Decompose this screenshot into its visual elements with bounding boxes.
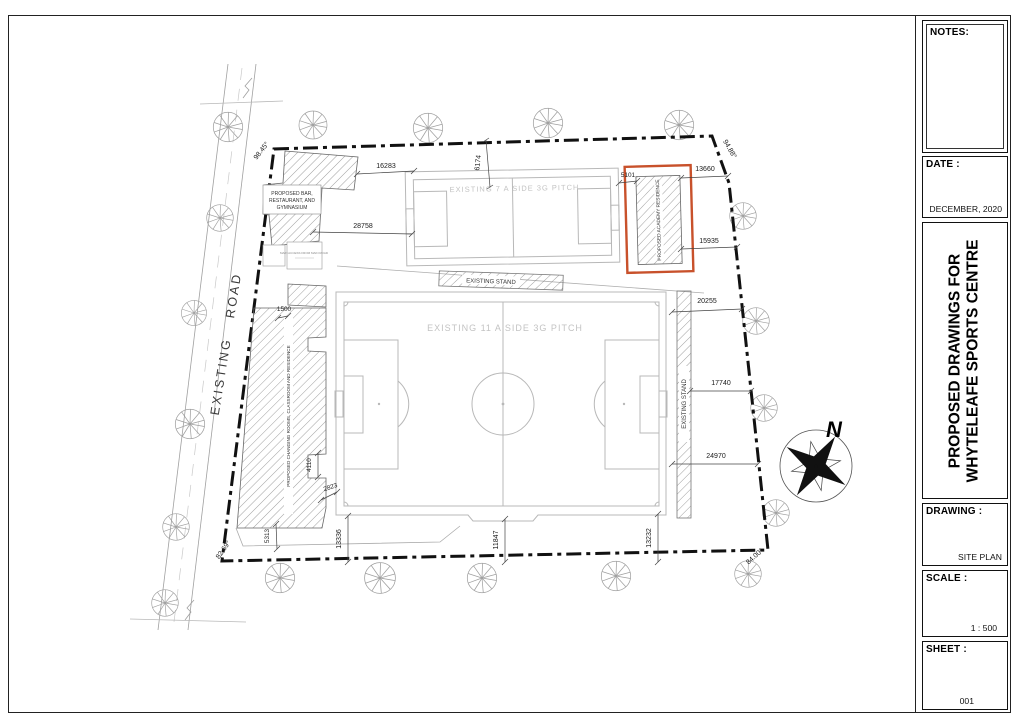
- access-annex-label: MAIN ACCESS FROM MAIN ROAD: [280, 251, 329, 255]
- scale-label: SCALE :: [923, 571, 1007, 586]
- tree-icon: [265, 563, 294, 592]
- svg-text:5313: 5313: [264, 528, 271, 543]
- date-label: DATE :: [923, 157, 1007, 172]
- date-value: DECEMBER, 2020: [929, 204, 1002, 214]
- tree-icon: [175, 409, 204, 438]
- pitch-7-a-side: EXISTING 7 A SIDE 3G PITCH: [405, 168, 620, 266]
- access-annex: MAIN ACCESS FROM MAIN ROAD: [263, 242, 329, 269]
- building-changing-label: PROPOSED CHANGING ROOMS, CLASSROOM AND R…: [286, 345, 291, 486]
- angle-top-right: 94.88°: [721, 138, 738, 160]
- svg-text:13336: 13336: [336, 529, 343, 549]
- project-title: PROPOSED DRAWINGS FOR WHYTELEAFE SPORTS …: [947, 239, 984, 482]
- project-title-line2: WHYTELEAFE SPORTS CENTRE: [965, 239, 983, 482]
- project-title-box: PROPOSED DRAWINGS FOR WHYTELEAFE SPORTS …: [922, 222, 1008, 499]
- pitch-11-label: EXISTING 11 A SIDE 3G PITCH: [427, 323, 583, 333]
- tree-icon: [299, 111, 327, 139]
- dimension-28758: 28758: [310, 223, 415, 237]
- dimension-17740: 17740: [687, 380, 754, 394]
- svg-text:15935: 15935: [699, 238, 719, 245]
- svg-text:13232: 13232: [646, 528, 653, 548]
- compass-rose-icon: N: [768, 417, 865, 514]
- tree-icon: [533, 108, 562, 137]
- tree-icon: [751, 395, 778, 422]
- drawing-label: DRAWING :: [923, 504, 1007, 519]
- drawing-box: DRAWING : SITE PLAN: [922, 503, 1008, 566]
- svg-text:1500: 1500: [277, 306, 292, 313]
- building-bar-label: PROPOSED BAR,: [271, 191, 312, 197]
- tree-icon: [181, 300, 206, 325]
- tree-icon: [601, 561, 630, 590]
- building-bar-label: GYMNASIUM: [277, 205, 308, 211]
- north-label: N: [826, 417, 843, 442]
- tree-icon: [207, 205, 234, 232]
- dimension-11847: 11847: [493, 516, 508, 565]
- dimension-15935: 15935: [678, 238, 740, 252]
- svg-text:17740: 17740: [711, 380, 731, 387]
- date-box: DATE : DECEMBER, 2020: [922, 156, 1008, 218]
- tree-icon: [467, 563, 496, 592]
- project-title-line1: PROPOSED DRAWINGS FOR: [947, 239, 965, 482]
- tree-icon: [213, 112, 242, 141]
- svg-text:5101: 5101: [621, 172, 636, 179]
- notes-inner-border: NOTES:: [926, 24, 1004, 149]
- tree-icon: [763, 500, 790, 527]
- scale-box: SCALE : 1 : 500: [922, 570, 1008, 637]
- sheet-label: SHEET :: [923, 642, 1007, 657]
- pitch-11-a-side: EXISTING 11 A SIDE 3G PITCH: [335, 292, 667, 521]
- sheet-box: SHEET : 001: [922, 641, 1008, 710]
- svg-text:4110: 4110: [306, 458, 313, 472]
- tree-icon: [365, 563, 396, 594]
- tree-icon: [413, 113, 442, 142]
- svg-text:13660: 13660: [695, 166, 715, 173]
- svg-text:20255: 20255: [697, 298, 717, 305]
- svg-text:24970: 24970: [706, 453, 726, 460]
- stand-top: EXISTING STAND: [439, 271, 563, 290]
- stand-right: EXISTING STAND: [677, 291, 691, 518]
- notes-box: NOTES:: [922, 20, 1008, 153]
- building-bar-label: RESTAURANT, AND: [269, 198, 315, 204]
- dimension-16283: 16283: [354, 163, 417, 177]
- dimension-6174: 6174: [474, 138, 493, 189]
- svg-text:16283: 16283: [376, 163, 396, 170]
- notes-label: NOTES:: [927, 25, 1003, 40]
- svg-text:6174: 6174: [474, 155, 483, 171]
- angle-top-left: 98.45°: [252, 140, 271, 161]
- sheet-value: 001: [960, 696, 974, 706]
- site-plan-canvas: EXISTING ROAD 98.45°: [0, 0, 1024, 724]
- building-bar-restaurant-gym: PROPOSED BAR, RESTAURANT, AND GYMNASIUM: [263, 151, 358, 246]
- drawing-value: SITE PLAN: [958, 552, 1002, 562]
- stand-right-label: EXISTING STAND: [682, 379, 688, 429]
- svg-text:11847: 11847: [493, 530, 500, 549]
- svg-text:28758: 28758: [353, 223, 373, 230]
- drawing-sheet: EXISTING ROAD 98.45°: [0, 0, 1024, 724]
- tree-icon: [743, 308, 770, 335]
- dimension-13232: 13232: [646, 511, 661, 565]
- pitch-7-label: EXISTING 7 A SIDE 3G PITCH: [450, 183, 580, 194]
- road-label: EXISTING ROAD: [208, 271, 244, 416]
- scale-value: 1 : 500: [971, 623, 997, 633]
- tree-icon: [152, 590, 179, 617]
